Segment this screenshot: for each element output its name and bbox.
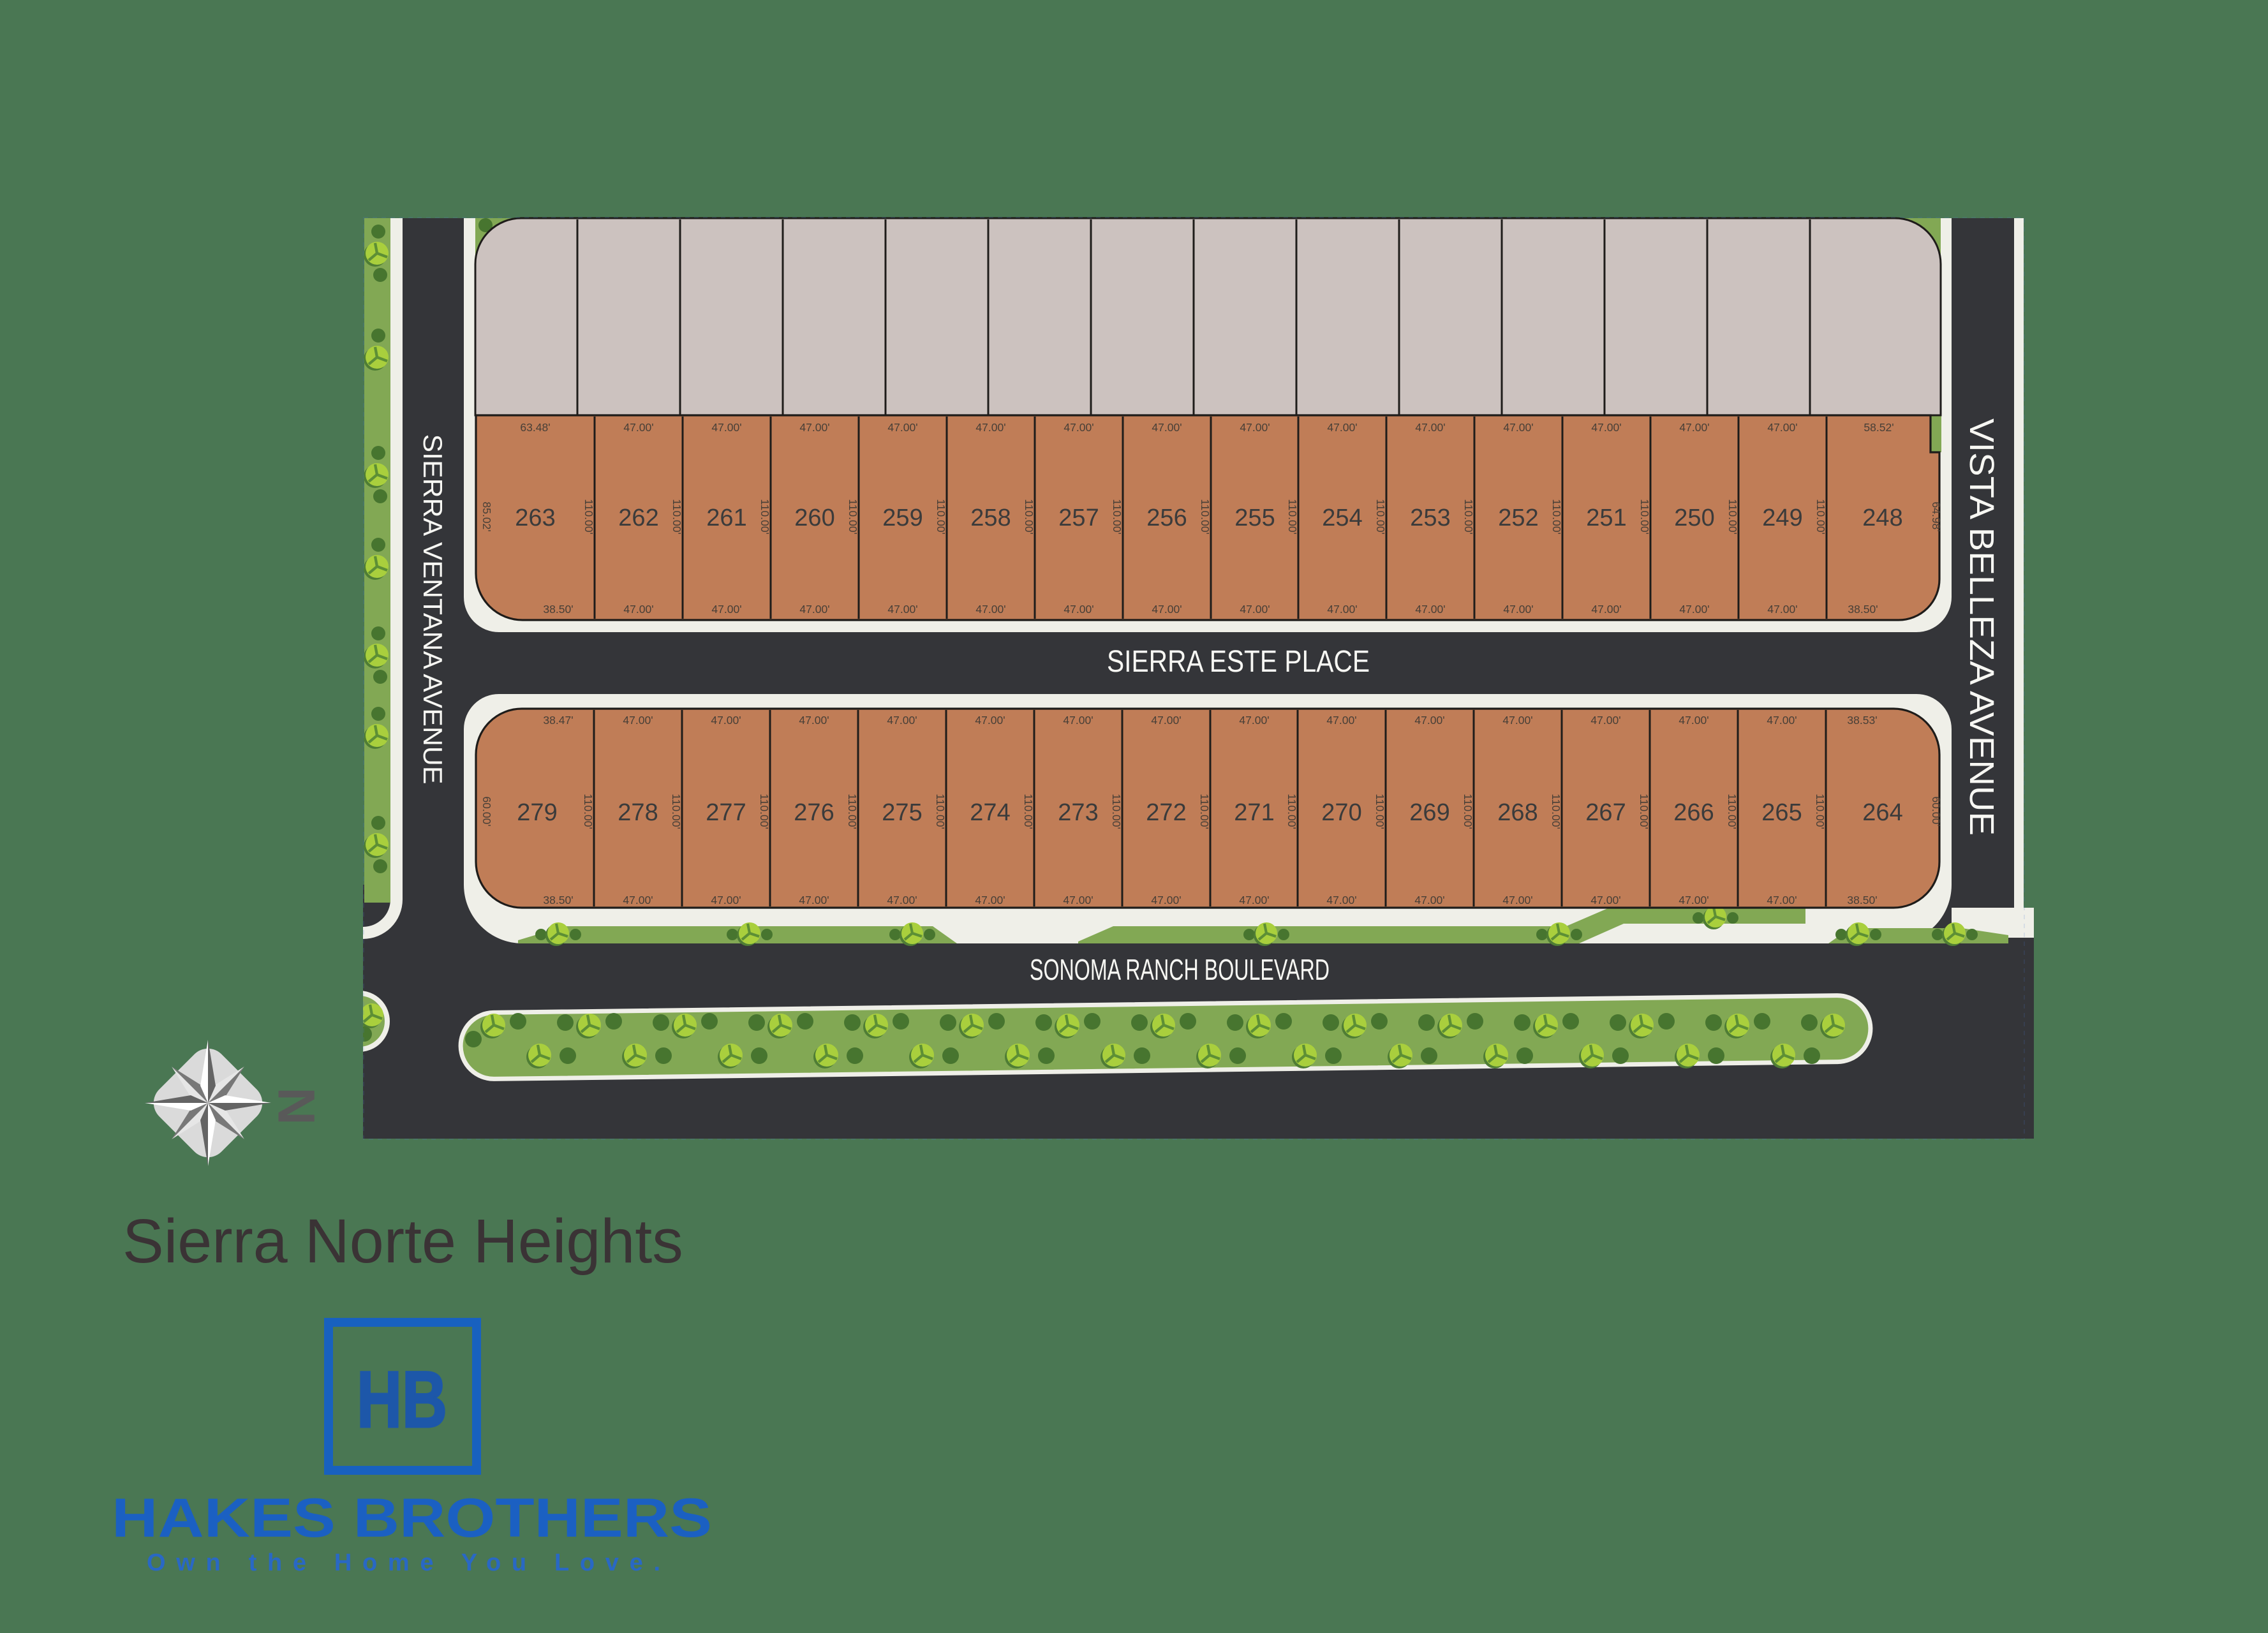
svg-text:110.00': 110.00' <box>1198 794 1211 829</box>
svg-text:263: 263 <box>515 505 555 531</box>
svg-text:38.50': 38.50' <box>543 894 573 906</box>
svg-text:60.00': 60.00' <box>1930 796 1943 826</box>
svg-text:254: 254 <box>1322 505 1362 531</box>
svg-text:264: 264 <box>1862 799 1902 826</box>
svg-text:110.00': 110.00' <box>1726 499 1739 535</box>
svg-text:110.00': 110.00' <box>935 499 947 535</box>
svg-text:38.50': 38.50' <box>1847 894 1877 906</box>
svg-text:47.00': 47.00' <box>975 421 1005 434</box>
svg-text:268: 268 <box>1497 799 1538 826</box>
svg-text:110.00': 110.00' <box>582 499 595 535</box>
svg-text:110.00': 110.00' <box>1814 499 1827 535</box>
svg-text:HAKES BROTHERS: HAKES BROTHERS <box>112 1488 712 1549</box>
svg-text:110.00': 110.00' <box>1022 794 1035 829</box>
svg-text:47.00': 47.00' <box>887 894 917 906</box>
svg-text:47.00': 47.00' <box>887 421 917 434</box>
svg-text:110.00': 110.00' <box>1286 794 1298 829</box>
svg-text:47.00': 47.00' <box>887 603 917 616</box>
svg-text:47.00': 47.00' <box>1239 894 1269 906</box>
svg-text:HB: HB <box>357 1356 447 1444</box>
svg-text:47.00': 47.00' <box>799 421 829 434</box>
svg-text:47.00': 47.00' <box>1502 894 1532 906</box>
svg-text:47.00': 47.00' <box>1327 603 1357 616</box>
svg-text:258: 258 <box>970 505 1011 531</box>
svg-text:64.98': 64.98' <box>1930 501 1943 531</box>
svg-text:47.00': 47.00' <box>1240 421 1270 434</box>
svg-text:110.00': 110.00' <box>1374 499 1387 535</box>
svg-text:110.00': 110.00' <box>847 499 859 535</box>
svg-text:47.00': 47.00' <box>1767 603 1797 616</box>
svg-text:248: 248 <box>1862 505 1902 531</box>
svg-text:250: 250 <box>1674 505 1714 531</box>
svg-text:259: 259 <box>882 505 923 531</box>
svg-text:SIERRA VENTANA AVENUE: SIERRA VENTANA AVENUE <box>418 434 448 785</box>
svg-text:273: 273 <box>1058 799 1098 826</box>
svg-text:256: 256 <box>1146 505 1187 531</box>
svg-text:110.00': 110.00' <box>671 499 683 535</box>
svg-text:38.47': 38.47' <box>543 714 573 727</box>
svg-text:110.00': 110.00' <box>759 499 771 535</box>
svg-text:265: 265 <box>1761 799 1802 826</box>
svg-text:47.00': 47.00' <box>1679 714 1708 727</box>
svg-text:110.00': 110.00' <box>1023 499 1035 535</box>
svg-text:47.00': 47.00' <box>1767 421 1797 434</box>
svg-text:110.00': 110.00' <box>846 794 859 829</box>
svg-text:47.00': 47.00' <box>1152 603 1182 616</box>
svg-text:110.00': 110.00' <box>1550 794 1562 829</box>
svg-text:110.00': 110.00' <box>1726 794 1738 829</box>
svg-text:277: 277 <box>706 799 746 826</box>
svg-text:271: 271 <box>1234 799 1274 826</box>
svg-text:47.00': 47.00' <box>1503 603 1533 616</box>
svg-text:63.48': 63.48' <box>520 421 550 434</box>
svg-text:47.00': 47.00' <box>711 421 741 434</box>
svg-text:110.00': 110.00' <box>670 794 683 829</box>
svg-text:251: 251 <box>1586 505 1626 531</box>
svg-text:47.00': 47.00' <box>623 421 653 434</box>
svg-text:47.00': 47.00' <box>887 714 917 727</box>
svg-text:110.00': 110.00' <box>1638 794 1650 829</box>
svg-text:47.00': 47.00' <box>1415 603 1445 616</box>
svg-text:SIERRA ESTE PLACE: SIERRA ESTE PLACE <box>1107 645 1370 679</box>
svg-text:255: 255 <box>1234 505 1275 531</box>
svg-text:261: 261 <box>706 505 746 531</box>
svg-text:110.00': 110.00' <box>1374 794 1386 829</box>
svg-text:270: 270 <box>1321 799 1361 826</box>
svg-text:262: 262 <box>618 505 658 531</box>
svg-text:47.00': 47.00' <box>1151 894 1181 906</box>
svg-text:58.52': 58.52' <box>1864 421 1894 434</box>
svg-text:60.00': 60.00' <box>480 796 493 826</box>
svg-text:47.00': 47.00' <box>623 894 653 906</box>
svg-text:47.00': 47.00' <box>1063 894 1093 906</box>
svg-text:110.00': 110.00' <box>1462 499 1475 535</box>
svg-text:260: 260 <box>794 505 834 531</box>
svg-text:VISTA BELLEZA AVENUE: VISTA BELLEZA AVENUE <box>1962 418 2001 836</box>
svg-text:47.00': 47.00' <box>1679 421 1709 434</box>
svg-text:38.53': 38.53' <box>1847 714 1877 727</box>
svg-text:110.00': 110.00' <box>1110 794 1123 829</box>
svg-text:85.02': 85.02' <box>480 501 493 531</box>
svg-text:47.00': 47.00' <box>1326 714 1356 727</box>
svg-text:266: 266 <box>1673 799 1714 826</box>
svg-text:47.00': 47.00' <box>623 714 653 727</box>
svg-text:278: 278 <box>618 799 658 826</box>
svg-text:110.00': 110.00' <box>1550 499 1563 535</box>
svg-text:47.00': 47.00' <box>1503 421 1533 434</box>
svg-text:249: 249 <box>1762 505 1802 531</box>
svg-text:47.00': 47.00' <box>1767 894 1797 906</box>
svg-text:47.00': 47.00' <box>1064 603 1093 616</box>
svg-text:110.00': 110.00' <box>934 794 947 829</box>
svg-text:47.00': 47.00' <box>1767 714 1797 727</box>
svg-text:47.00': 47.00' <box>1679 603 1709 616</box>
svg-text:47.00': 47.00' <box>1502 714 1532 727</box>
svg-text:47.00': 47.00' <box>711 603 741 616</box>
svg-text:269: 269 <box>1409 799 1449 826</box>
svg-text:47.00': 47.00' <box>1064 421 1093 434</box>
svg-text:47.00': 47.00' <box>799 714 829 727</box>
svg-text:252: 252 <box>1498 505 1538 531</box>
svg-text:47.00': 47.00' <box>1590 714 1620 727</box>
svg-text:47.00': 47.00' <box>1590 894 1620 906</box>
svg-text:110.00': 110.00' <box>758 794 771 829</box>
svg-text:110.00': 110.00' <box>1111 499 1123 535</box>
svg-text:47.00': 47.00' <box>1591 603 1621 616</box>
svg-text:47.00': 47.00' <box>1591 421 1621 434</box>
svg-text:47.00': 47.00' <box>1240 603 1270 616</box>
svg-text:253: 253 <box>1410 505 1450 531</box>
svg-text:47.00': 47.00' <box>1151 714 1181 727</box>
svg-text:47.00': 47.00' <box>1414 714 1444 727</box>
svg-text:47.00': 47.00' <box>799 603 829 616</box>
svg-text:267: 267 <box>1585 799 1626 826</box>
svg-text:257: 257 <box>1058 505 1099 531</box>
svg-text:275: 275 <box>882 799 922 826</box>
svg-text:274: 274 <box>970 799 1010 826</box>
svg-text:47.00': 47.00' <box>1415 421 1445 434</box>
svg-text:110.00': 110.00' <box>1462 794 1474 829</box>
svg-text:47.00': 47.00' <box>975 894 1005 906</box>
svg-text:SONOMA RANCH BOULEVARD: SONOMA RANCH BOULEVARD <box>1030 953 1330 986</box>
svg-text:47.00': 47.00' <box>1152 421 1182 434</box>
svg-text:110.00': 110.00' <box>1814 794 1827 829</box>
svg-text:38.50': 38.50' <box>1848 603 1878 616</box>
svg-text:47.00': 47.00' <box>1239 714 1269 727</box>
svg-text:47.00': 47.00' <box>1679 894 1708 906</box>
svg-text:N: N <box>267 1087 325 1125</box>
svg-text:47.00': 47.00' <box>975 603 1005 616</box>
svg-text:110.00': 110.00' <box>1286 499 1299 535</box>
svg-text:47.00': 47.00' <box>799 894 829 906</box>
svg-text:47.00': 47.00' <box>711 894 741 906</box>
svg-text:47.00': 47.00' <box>623 603 653 616</box>
svg-text:Sierra Norte Heights: Sierra Norte Heights <box>122 1206 683 1276</box>
svg-text:110.00': 110.00' <box>1638 499 1651 535</box>
svg-text:47.00': 47.00' <box>975 714 1005 727</box>
svg-text:279: 279 <box>517 799 557 826</box>
svg-text:47.00': 47.00' <box>711 714 741 727</box>
svg-text:110.00': 110.00' <box>582 794 595 829</box>
svg-text:110.00': 110.00' <box>1199 499 1212 535</box>
svg-text:47.00': 47.00' <box>1327 421 1357 434</box>
svg-text:47.00': 47.00' <box>1414 894 1444 906</box>
svg-text:47.00': 47.00' <box>1326 894 1356 906</box>
svg-text:272: 272 <box>1146 799 1186 826</box>
svg-text:38.50': 38.50' <box>543 603 573 616</box>
svg-text:276: 276 <box>794 799 834 826</box>
svg-text:47.00': 47.00' <box>1063 714 1093 727</box>
